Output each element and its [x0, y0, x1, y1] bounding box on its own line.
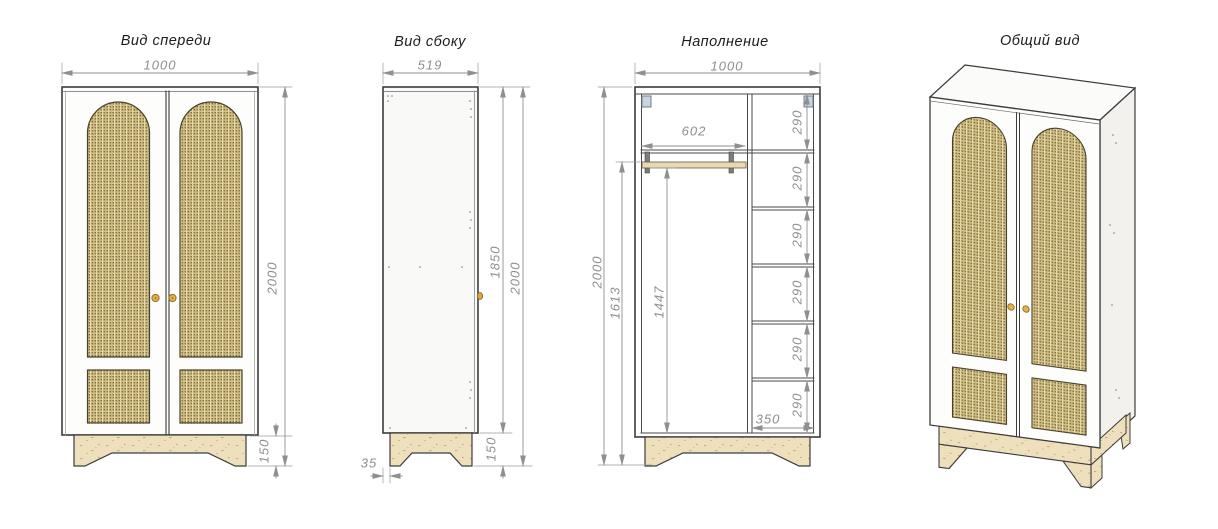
dim-side-total-height: 2000: [508, 262, 523, 295]
dim-interior-rod-width: 602: [682, 124, 707, 139]
interior-base-legs: [645, 437, 810, 466]
furniture-drawing-sheet: Вид спереди Вид сбоку Наполнение Общий в…: [0, 0, 1218, 529]
front-view-drawing: [62, 63, 292, 478]
dim-interior-total-height: 2000: [590, 256, 605, 289]
dim-shelf-pitch-4: 290: [790, 280, 805, 305]
side-view-title: Вид сбоку: [394, 34, 466, 50]
wardrobe-technical-drawing: [0, 0, 1218, 529]
dim-side-leg-inset: 35: [361, 456, 377, 471]
dim-side-body-height: 1850: [488, 246, 503, 279]
interior-view-drawing: [598, 63, 820, 466]
dim-front-total-height: 2000: [265, 262, 280, 295]
dim-front-leg-height: 150: [257, 439, 272, 464]
front-view-title: Вид спереди: [121, 33, 212, 49]
dim-interior-width: 1000: [711, 59, 744, 74]
overall-view-title: Общий вид: [1000, 33, 1080, 49]
overall-3d-view-drawing: [930, 65, 1135, 489]
dim-shelf-pitch-3: 290: [790, 223, 805, 248]
dim-shelf-pitch-6: 290: [790, 393, 805, 418]
dim-interior-rod-clear: 1447: [652, 286, 667, 319]
side-knob-profile: [477, 293, 482, 300]
corner-bracket-right: [804, 96, 813, 107]
dim-shelf-pitch-1: 290: [790, 110, 805, 135]
interior-view-title: Наполнение: [681, 34, 768, 50]
dim-shelf-pitch-5: 290: [790, 337, 805, 362]
dim-side-leg-height: 150: [484, 437, 499, 462]
front-base-legs: [74, 435, 246, 466]
corner-bracket-left: [642, 96, 651, 107]
dim-shelf-pitch-2: 290: [790, 166, 805, 191]
dim-front-width: 1000: [144, 58, 177, 73]
dim-interior-shelf-width: 350: [756, 412, 781, 427]
dim-side-depth: 519: [418, 58, 443, 73]
side-base-legs: [390, 433, 472, 466]
dim-interior-rod-height: 1613: [608, 287, 623, 320]
